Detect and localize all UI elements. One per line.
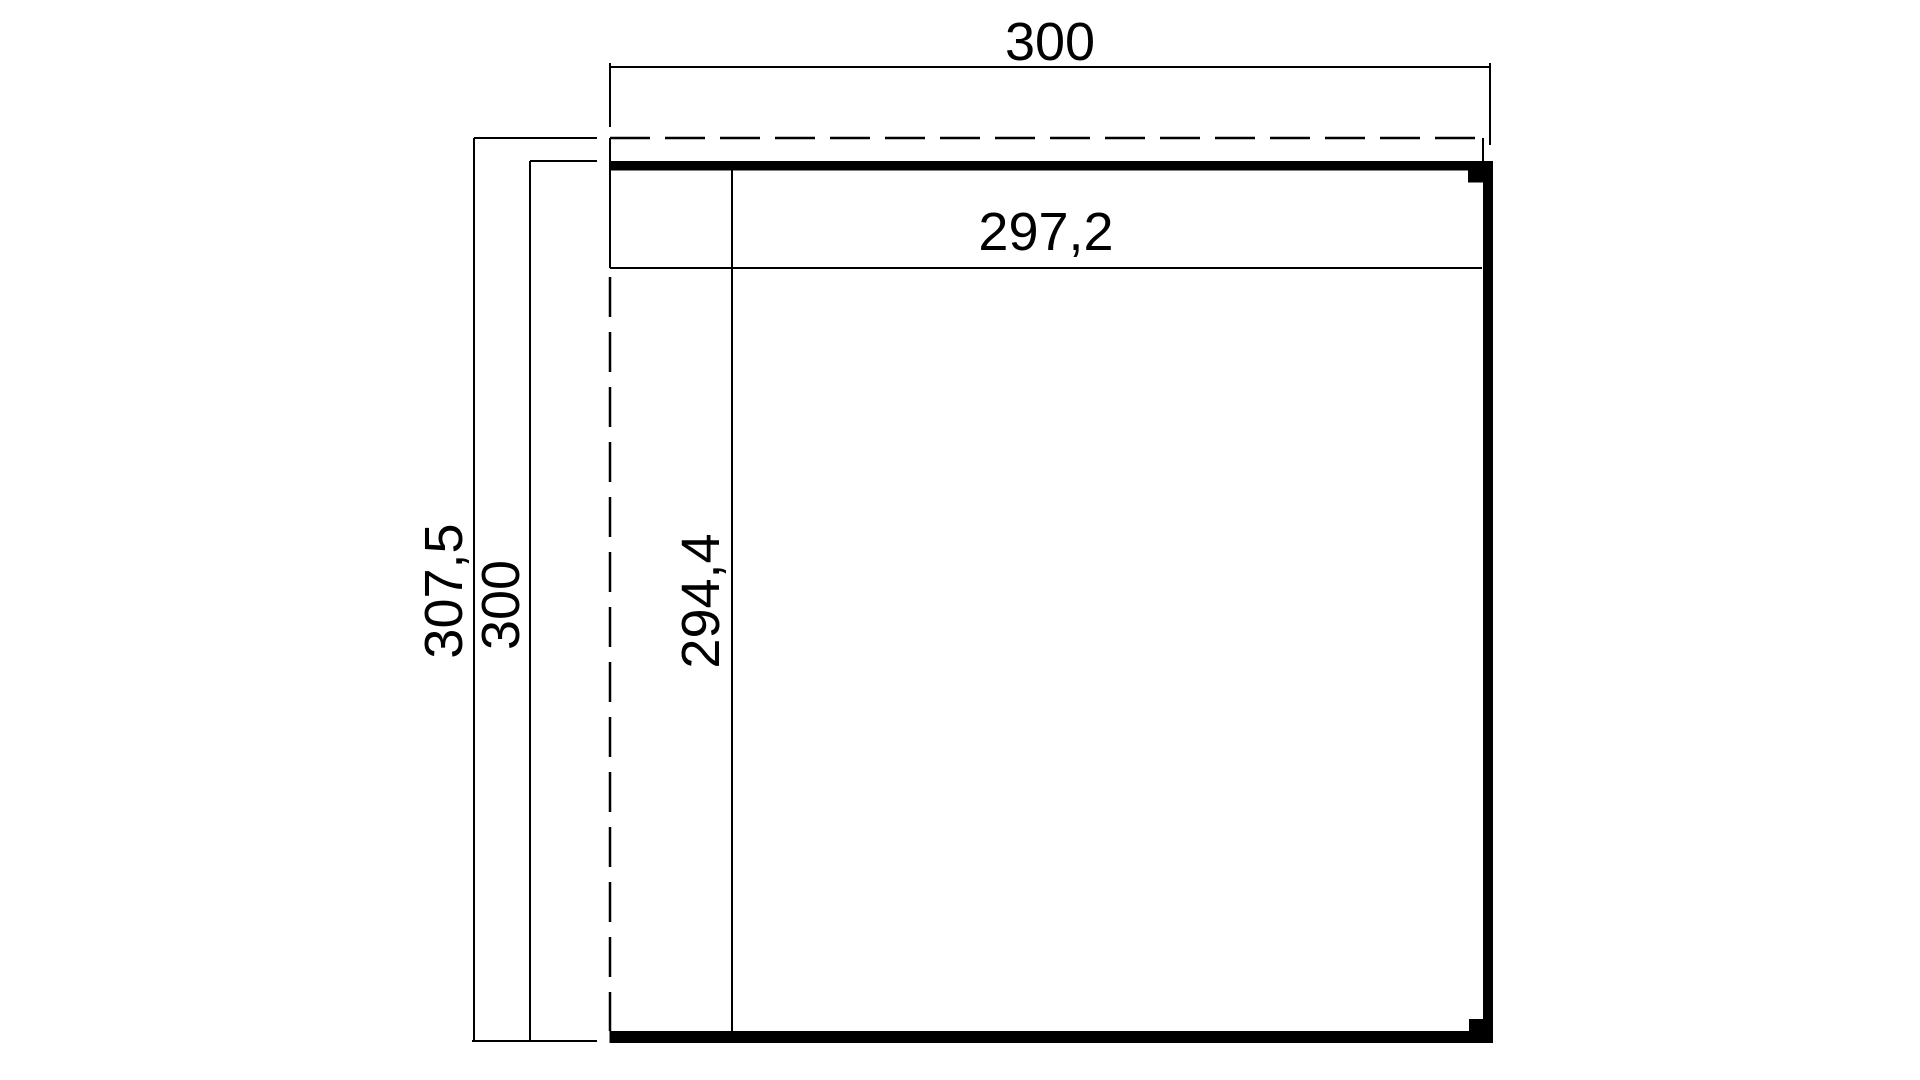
label-inner-depth: 294,4 [671, 533, 731, 668]
floor-plan-drawing: 300 307,5 300 294,4 297,2 [0, 0, 1920, 1080]
label-top-width: 300 [1005, 12, 1095, 72]
roof-overhang-outline [610, 138, 1483, 1031]
wall-top [610, 161, 1494, 171]
wall-bottom [610, 1031, 1494, 1043]
corner-post-bottom-right [1469, 1019, 1483, 1031]
corner-post-top-right [1468, 171, 1483, 183]
walls [610, 161, 1494, 1043]
label-wall-depth: 300 [471, 560, 531, 650]
floor-plan-page: 300 307,5 300 294,4 297,2 [0, 0, 1920, 1080]
label-overall-depth: 307,5 [414, 523, 474, 658]
dimension-labels: 300 307,5 300 294,4 297,2 [414, 12, 1114, 669]
wall-right [1483, 161, 1493, 1043]
label-inner-width: 297,2 [978, 202, 1113, 262]
